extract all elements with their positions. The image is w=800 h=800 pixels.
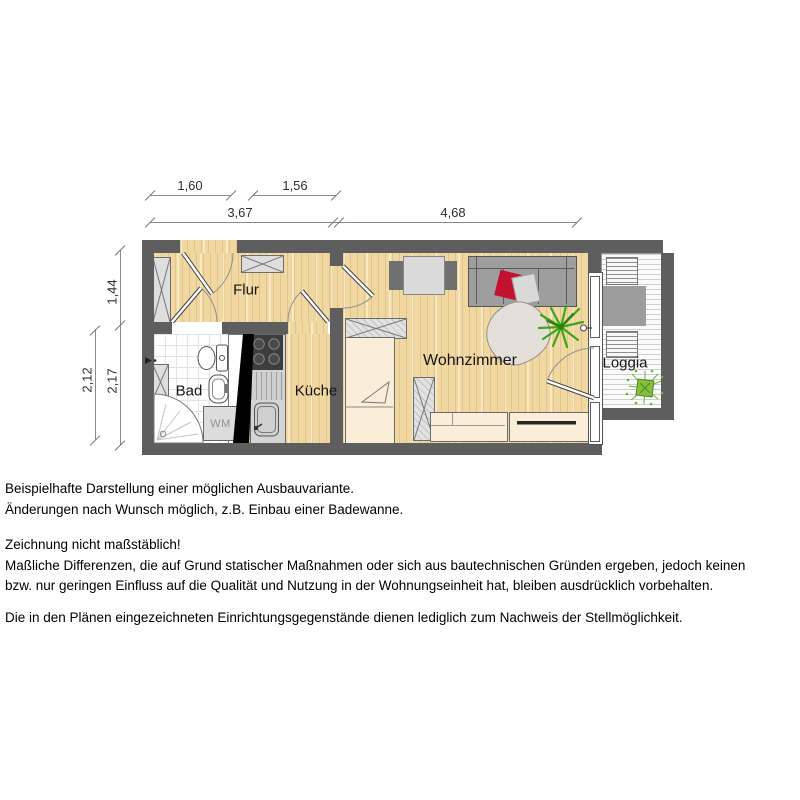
wall-flur-wohnzimmer	[330, 308, 343, 443]
flur-cabinet-top	[241, 255, 284, 273]
room-label-bad: Bad	[176, 383, 203, 400]
dim-line-left-outer	[95, 330, 96, 440]
note-line: Die in den Plänen eingezeichneten Einric…	[5, 608, 683, 629]
dim-label-1-60: 1,60	[177, 178, 202, 193]
wall-flur-kueche-segment	[222, 322, 288, 334]
wall-flur-bad-segment	[154, 322, 172, 334]
window-pane-lower	[590, 402, 600, 442]
wall-flur-wohnzimmer-stub	[330, 253, 343, 266]
dim-label-2-12: 2,12	[80, 367, 95, 392]
loggia-table	[602, 286, 646, 326]
wall-left	[142, 240, 154, 455]
bed	[345, 337, 395, 445]
window-pane-upper	[590, 276, 600, 338]
room-label-wohnzimmer: Wohnzimmer	[423, 352, 517, 370]
sofa-arm-line-left	[476, 257, 477, 304]
note-line: Änderungen nach Wunsch möglich, z.B. Ein…	[5, 500, 403, 521]
room-label-flur: Flur	[233, 282, 259, 299]
bad-cabinet	[152, 364, 169, 400]
wall-loggia-bottom	[600, 408, 674, 420]
notes-paragraph-3: Die in den Plänen eingezeichneten Einric…	[5, 608, 683, 629]
balcony-door-pane	[590, 346, 600, 398]
room-label-loggia: Loggia	[602, 355, 647, 372]
sideboard-left-divider-v	[452, 413, 453, 425]
entrance-threshold	[180, 240, 237, 253]
kitchen-cabinet	[251, 372, 283, 400]
sofa-back-line	[469, 268, 574, 269]
notes-paragraph-2: Zeichnung nicht maßstäblich! Maßliche Di…	[5, 535, 745, 597]
loggia-chair-top	[606, 257, 638, 285]
washing-machine: WM	[203, 406, 238, 441]
sideboard-left	[430, 412, 508, 442]
wall-bottom	[142, 443, 602, 455]
flur-wardrobe-tall	[152, 257, 171, 323]
wall-top	[237, 240, 663, 253]
cooktop	[251, 335, 283, 370]
kueche-door-threshold	[288, 322, 328, 334]
dim-label-1-56: 1,56	[282, 178, 307, 193]
bad-door-threshold	[172, 322, 222, 334]
note-line: Beispielhafte Darstellung einer mögliche…	[5, 479, 403, 500]
dim-line-top-row1-b	[253, 195, 336, 196]
tv-board	[509, 412, 590, 442]
dim-line-top-row1-a	[150, 195, 231, 196]
dim-label-4-68: 4,68	[440, 205, 465, 220]
washing-machine-label: WM	[210, 418, 231, 430]
note-line: bzw. nur geringen Einfluss auf die Quali…	[5, 576, 745, 597]
sideboard-left-divider-h	[431, 425, 505, 426]
dim-label-1-44: 1,44	[105, 279, 120, 304]
wall-loggia-right	[661, 253, 674, 420]
floor-plan-page: { "colors": { "wall_gray": "#5e5e5e", "w…	[0, 0, 800, 800]
bed-wardrobe	[345, 318, 407, 339]
notes-paragraph-1: Beispielhafte Darstellung einer mögliche…	[5, 479, 403, 520]
wohnzimmer-door-threshold	[330, 266, 343, 308]
dim-line-left-inner	[120, 250, 121, 445]
wall-window-top-stub	[588, 253, 601, 272]
sofa-arm-line-right	[566, 257, 567, 304]
dining-table	[403, 256, 445, 295]
note-line: Maßliche Differenzen, die auf Grund stat…	[5, 556, 745, 577]
dim-label-3-67: 3,67	[227, 205, 252, 220]
dim-label-2-17: 2,17	[105, 368, 120, 393]
dim-line-top-row2	[150, 222, 577, 223]
room-label-kueche: Küche	[295, 383, 338, 400]
note-line: Zeichnung nicht maßstäblich!	[5, 535, 745, 556]
